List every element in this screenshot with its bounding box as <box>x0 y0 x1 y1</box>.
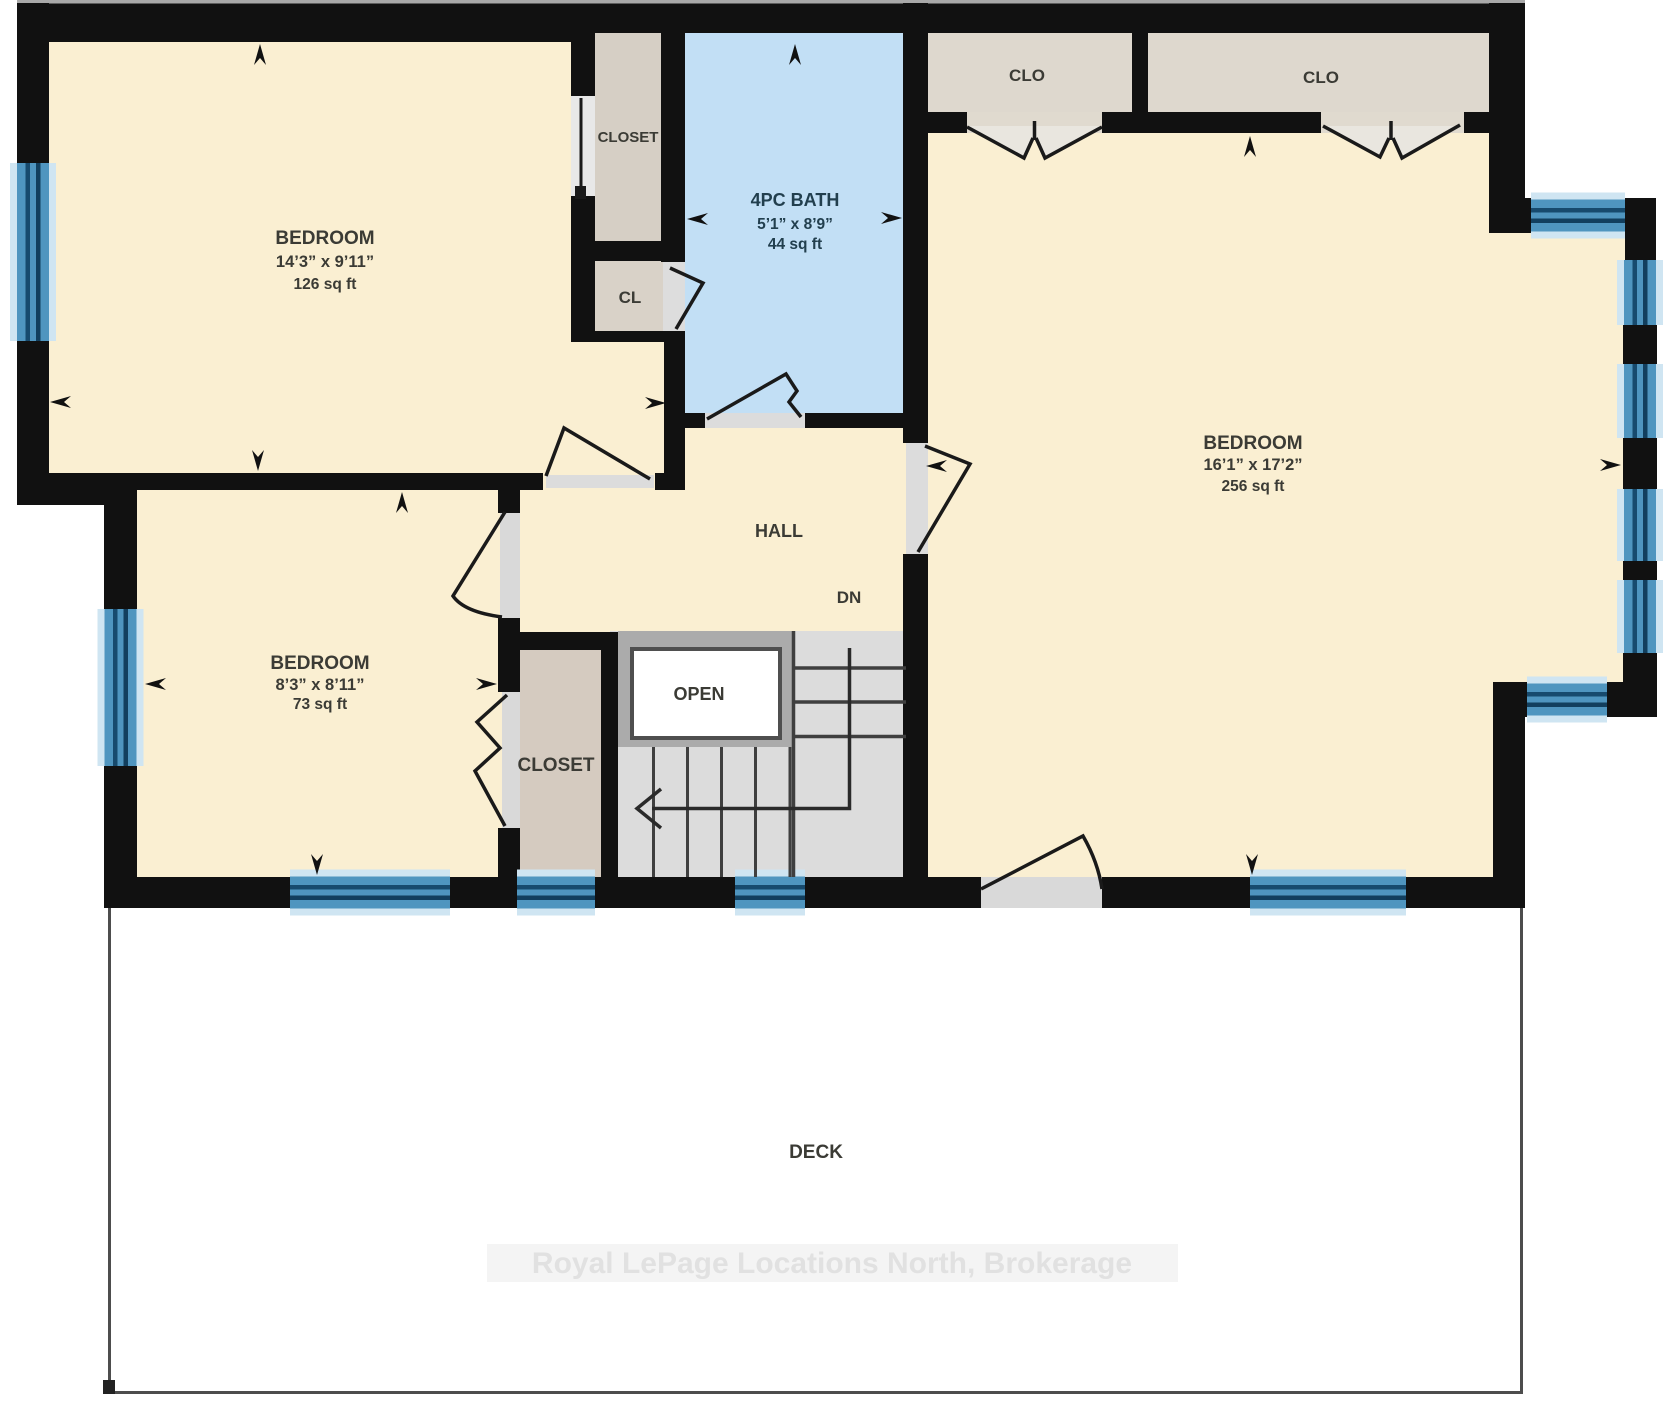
svg-text:14’3” x 9’11”: 14’3” x 9’11” <box>276 253 374 271</box>
svg-text:126 sq ft: 126 sq ft <box>294 276 357 293</box>
svg-text:CLOSET: CLOSET <box>517 755 594 776</box>
svg-text:BEDROOM: BEDROOM <box>1203 433 1302 454</box>
svg-text:4PC BATH: 4PC BATH <box>751 190 840 210</box>
svg-text:HALL: HALL <box>755 521 803 541</box>
svg-text:CLOSET: CLOSET <box>598 129 659 146</box>
svg-text:DECK: DECK <box>789 1142 843 1163</box>
svg-text:DN: DN <box>837 588 862 607</box>
svg-text:73 sq ft: 73 sq ft <box>293 696 347 713</box>
svg-text:CLO: CLO <box>1009 66 1045 85</box>
svg-text:16’1” x 17’2”: 16’1” x 17’2” <box>1203 456 1302 474</box>
svg-text:BEDROOM: BEDROOM <box>275 228 374 249</box>
svg-text:5’1” x 8’9”: 5’1” x 8’9” <box>757 216 833 233</box>
svg-text:BEDROOM: BEDROOM <box>270 653 369 674</box>
svg-text:OPEN: OPEN <box>673 684 724 704</box>
svg-text:CLO: CLO <box>1303 68 1339 87</box>
svg-text:256 sq ft: 256 sq ft <box>1222 478 1285 495</box>
svg-text:Royal LePage Locations North,: Royal LePage Locations North, Brokerage <box>532 1247 1132 1280</box>
svg-text:44 sq ft: 44 sq ft <box>768 236 822 253</box>
svg-text:CL: CL <box>619 288 642 307</box>
svg-text:8’3” x 8’11”: 8’3” x 8’11” <box>276 676 365 694</box>
